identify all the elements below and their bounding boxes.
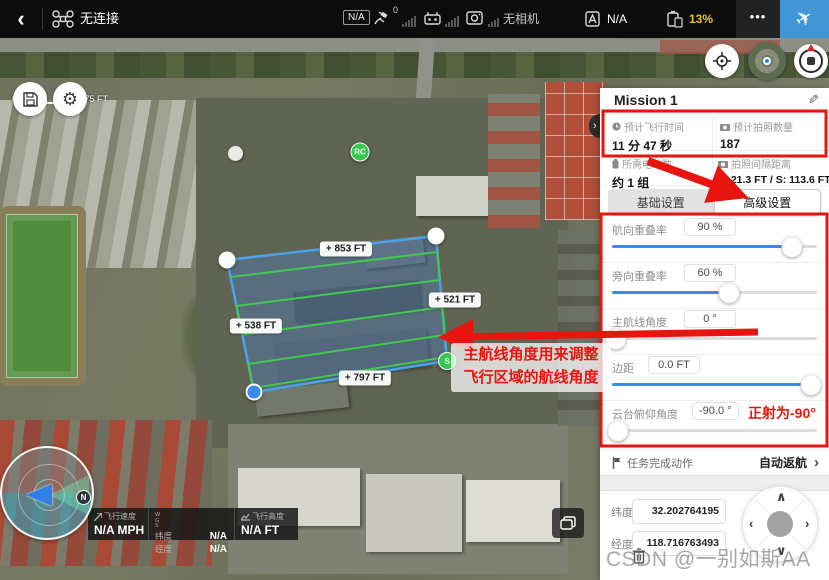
status-bar: ‹ 无连接 N/A 0 无相机	[0, 0, 829, 38]
rc-location-marker: RC	[351, 143, 370, 162]
battery-status-icon	[666, 10, 684, 28]
map-soccer-pitch	[6, 214, 78, 378]
edge-distance-label[interactable]: + 853 FT	[320, 242, 372, 257]
battery-percent: 13%	[689, 0, 713, 38]
route-start-marker[interactable]: S	[438, 352, 456, 370]
polygon-corner-handle-selected[interactable]	[246, 384, 263, 401]
polygon-corner-handle[interactable]	[428, 228, 445, 245]
slider-thumb[interactable]	[782, 236, 803, 257]
stat-photo-interval: 拍照间隔距离 F: 21.3 FT / S: 113.6 FT	[718, 156, 829, 186]
start-marker-label: S	[444, 357, 449, 366]
trash-icon	[632, 548, 646, 564]
map-building	[255, 381, 349, 416]
dpad-right-icon[interactable]: ›	[805, 516, 809, 531]
slider-route-angle: 主航线角度 0 °	[600, 309, 829, 355]
delete-waypoint-button[interactable]	[632, 548, 646, 569]
slider-side-overlap: 旁向重叠率 60 %	[600, 263, 829, 309]
slider-thumb[interactable]	[606, 328, 627, 349]
tele-lon-label: 经度	[155, 543, 172, 556]
map-building	[416, 176, 494, 216]
datum-label: WGS	[155, 513, 160, 530]
stat-flight-time: 预计飞行时间 11 分 47 秒	[612, 119, 684, 154]
topbar-divider	[42, 8, 43, 30]
flight-status-value: N/A	[607, 0, 627, 38]
telemetry-coords: WGS 纬度N/A 经度N/A	[148, 508, 234, 540]
flight-status-icon	[584, 10, 602, 28]
map-building	[363, 235, 426, 269]
dpad-down-icon[interactable]: ∨	[776, 543, 787, 559]
mission-end-value: 自动返航	[759, 454, 807, 471]
back-button[interactable]: ‹	[8, 4, 34, 34]
slider-track[interactable]	[612, 429, 817, 432]
dpad-up-icon[interactable]: ∧	[776, 489, 787, 505]
rc-signal-bars	[445, 15, 459, 27]
slider-value-field[interactable]: 90 %	[684, 218, 736, 236]
attitude-dial-icon	[799, 49, 823, 73]
camera-link-icon	[466, 11, 483, 25]
slider-label: 边距	[612, 360, 634, 376]
longitude-input[interactable]: 118.716763493	[632, 531, 726, 556]
chevron-right-icon: ›	[814, 454, 819, 471]
slider-label: 云台俯仰角度	[612, 406, 678, 422]
slider-margin: 边距 0.0 FT	[600, 355, 829, 401]
dpad-left-icon[interactable]: ‹	[749, 516, 753, 531]
telemetry-speed: 飞行速度 N/A MPH	[88, 508, 148, 540]
speed-label: 飞行速度	[104, 511, 136, 522]
gps-signal-bars	[402, 15, 416, 27]
advanced-settings-section: 航向重叠率 90 % 旁向重叠率 60 % 主航线角度 0 ° 边距 0.0 F…	[600, 217, 829, 448]
slider-value-field[interactable]: 60 %	[684, 264, 736, 282]
slider-value-field[interactable]: 0.0 FT	[648, 356, 700, 374]
gps-satellite-icon	[372, 11, 390, 27]
speed-value: N/A MPH	[94, 523, 142, 537]
locate-button[interactable]	[705, 44, 739, 78]
stat-battery-count: 所需电池数 约 1 组	[612, 156, 672, 191]
north-arrow-icon	[807, 44, 815, 51]
tele-lat-label: 纬度	[155, 530, 172, 543]
gear-icon: ⚙	[62, 89, 78, 110]
map-type-icon	[560, 516, 576, 530]
clock-icon	[612, 122, 621, 131]
map-industrial-buildings	[228, 424, 568, 574]
tab-advanced-settings[interactable]: 高级设置	[714, 189, 822, 216]
latitude-input[interactable]: 32.202764195	[632, 499, 726, 524]
edit-mission-icon[interactable]: ✎	[808, 92, 819, 108]
save-icon	[22, 91, 39, 108]
battery-icon	[612, 159, 619, 169]
edge-distance-label[interactable]: + 538 FT	[230, 319, 282, 334]
stat-photo-count: 预计拍照数量 187	[720, 119, 793, 151]
tele-lat-value: N/A	[210, 530, 227, 543]
remote-controller-icon	[424, 11, 441, 26]
attitude-compass: N	[0, 446, 96, 542]
mission-header: Mission 1 ✎	[600, 88, 829, 113]
slider-thumb[interactable]	[718, 282, 739, 303]
map-red-roofs	[488, 94, 540, 228]
mission-panel: Mission 1 ✎ 预计飞行时间 11 分 47 秒 预计拍照数量 187 …	[600, 88, 829, 580]
more-menu-button[interactable]: •••	[736, 0, 780, 38]
rc-marker-label: RC	[354, 148, 366, 157]
mission-stats: 预计飞行时间 11 分 47 秒 预计拍照数量 187 所需电池数 约 1 组 …	[600, 113, 829, 186]
dpad-center-knob[interactable]	[767, 511, 793, 537]
tab-basic-settings[interactable]: 基础设置	[608, 189, 714, 216]
lat-label: 纬度	[611, 504, 633, 520]
camera-signal-bars	[488, 15, 499, 27]
nudge-dpad[interactable]: ∧ ‹ › ∨	[742, 486, 818, 562]
mission-end-action-row[interactable]: 任务完成动作 自动返航 ›	[600, 449, 829, 475]
slider-track[interactable]	[612, 337, 817, 340]
map-red-courts	[545, 82, 605, 220]
slider-thumb[interactable]	[800, 374, 821, 395]
slider-thumb[interactable]	[608, 420, 629, 441]
compass-dial-button[interactable]	[794, 44, 828, 78]
connection-status: 无连接	[80, 0, 119, 38]
mission-settings-button[interactable]: ⚙	[53, 82, 87, 116]
minimap-location-dot	[763, 57, 771, 65]
slider-value-field[interactable]: 0 °	[684, 310, 736, 328]
tele-lon-value: N/A	[210, 543, 227, 556]
map-building	[466, 480, 560, 542]
slider-track[interactable]	[612, 291, 817, 294]
gps-count: 0	[393, 5, 398, 15]
slider-value-field[interactable]: -90.0 °	[692, 402, 739, 420]
slider-track[interactable]	[612, 245, 817, 248]
lon-label: 经度	[611, 536, 633, 552]
ortho-annotation: 正射为-90°	[748, 403, 816, 423]
north-badge: N	[76, 490, 91, 505]
mission-end-label: 任务完成动作	[627, 455, 754, 471]
slider-label: 航向重叠率	[612, 222, 667, 238]
save-mission-button[interactable]	[13, 82, 47, 116]
map-building	[293, 279, 421, 322]
settings-tabs: 基础设置 高级设置	[608, 189, 821, 216]
airplane-icon: ✈	[787, 0, 821, 40]
altitude-value: N/A FT	[241, 523, 292, 537]
app-screen: 0 375 FT S RC + 853 FT + 521 FT + 538 FT…	[0, 0, 829, 580]
camera-icon	[720, 123, 730, 131]
slider-course-overlap: 航向重叠率 90 %	[600, 217, 829, 263]
map-dome	[228, 146, 243, 161]
minimap-button[interactable]	[748, 42, 786, 80]
telemetry-bar: 飞行速度 N/A MPH WGS 纬度N/A 经度N/A 飞行高度 N/A FT	[88, 508, 298, 540]
takeoff-button[interactable]: ✈	[780, 0, 829, 38]
map-buildings-strip	[558, 230, 602, 426]
finish-flag-icon	[612, 457, 622, 469]
drone-dot-icon	[807, 57, 815, 65]
map-layers-button[interactable]	[552, 508, 584, 538]
altitude-icon	[241, 513, 250, 521]
slider-label: 旁向重叠率	[612, 268, 667, 284]
drone-icon	[52, 10, 74, 28]
mission-title: Mission 1	[614, 92, 678, 108]
slider-track[interactable]	[612, 383, 817, 386]
map-building	[366, 474, 462, 552]
slider-label: 主航线角度	[612, 314, 667, 330]
slider-gimbal-pitch: 云台俯仰角度 -90.0 ° 正射为-90°	[600, 401, 829, 447]
polygon-corner-handle[interactable]	[219, 252, 236, 269]
camera-icon	[718, 160, 728, 168]
edge-distance-label[interactable]: + 797 FT	[339, 371, 391, 386]
altitude-label: 飞行高度	[252, 511, 284, 522]
camera-status: 无相机	[503, 0, 539, 38]
crosshair-icon	[713, 52, 731, 70]
edge-distance-label[interactable]: + 521 FT	[429, 293, 481, 308]
aircraft-arrow-icon	[26, 484, 52, 506]
aircraft-signal-badge: N/A	[343, 10, 370, 25]
telemetry-altitude: 飞行高度 N/A FT	[234, 508, 298, 540]
